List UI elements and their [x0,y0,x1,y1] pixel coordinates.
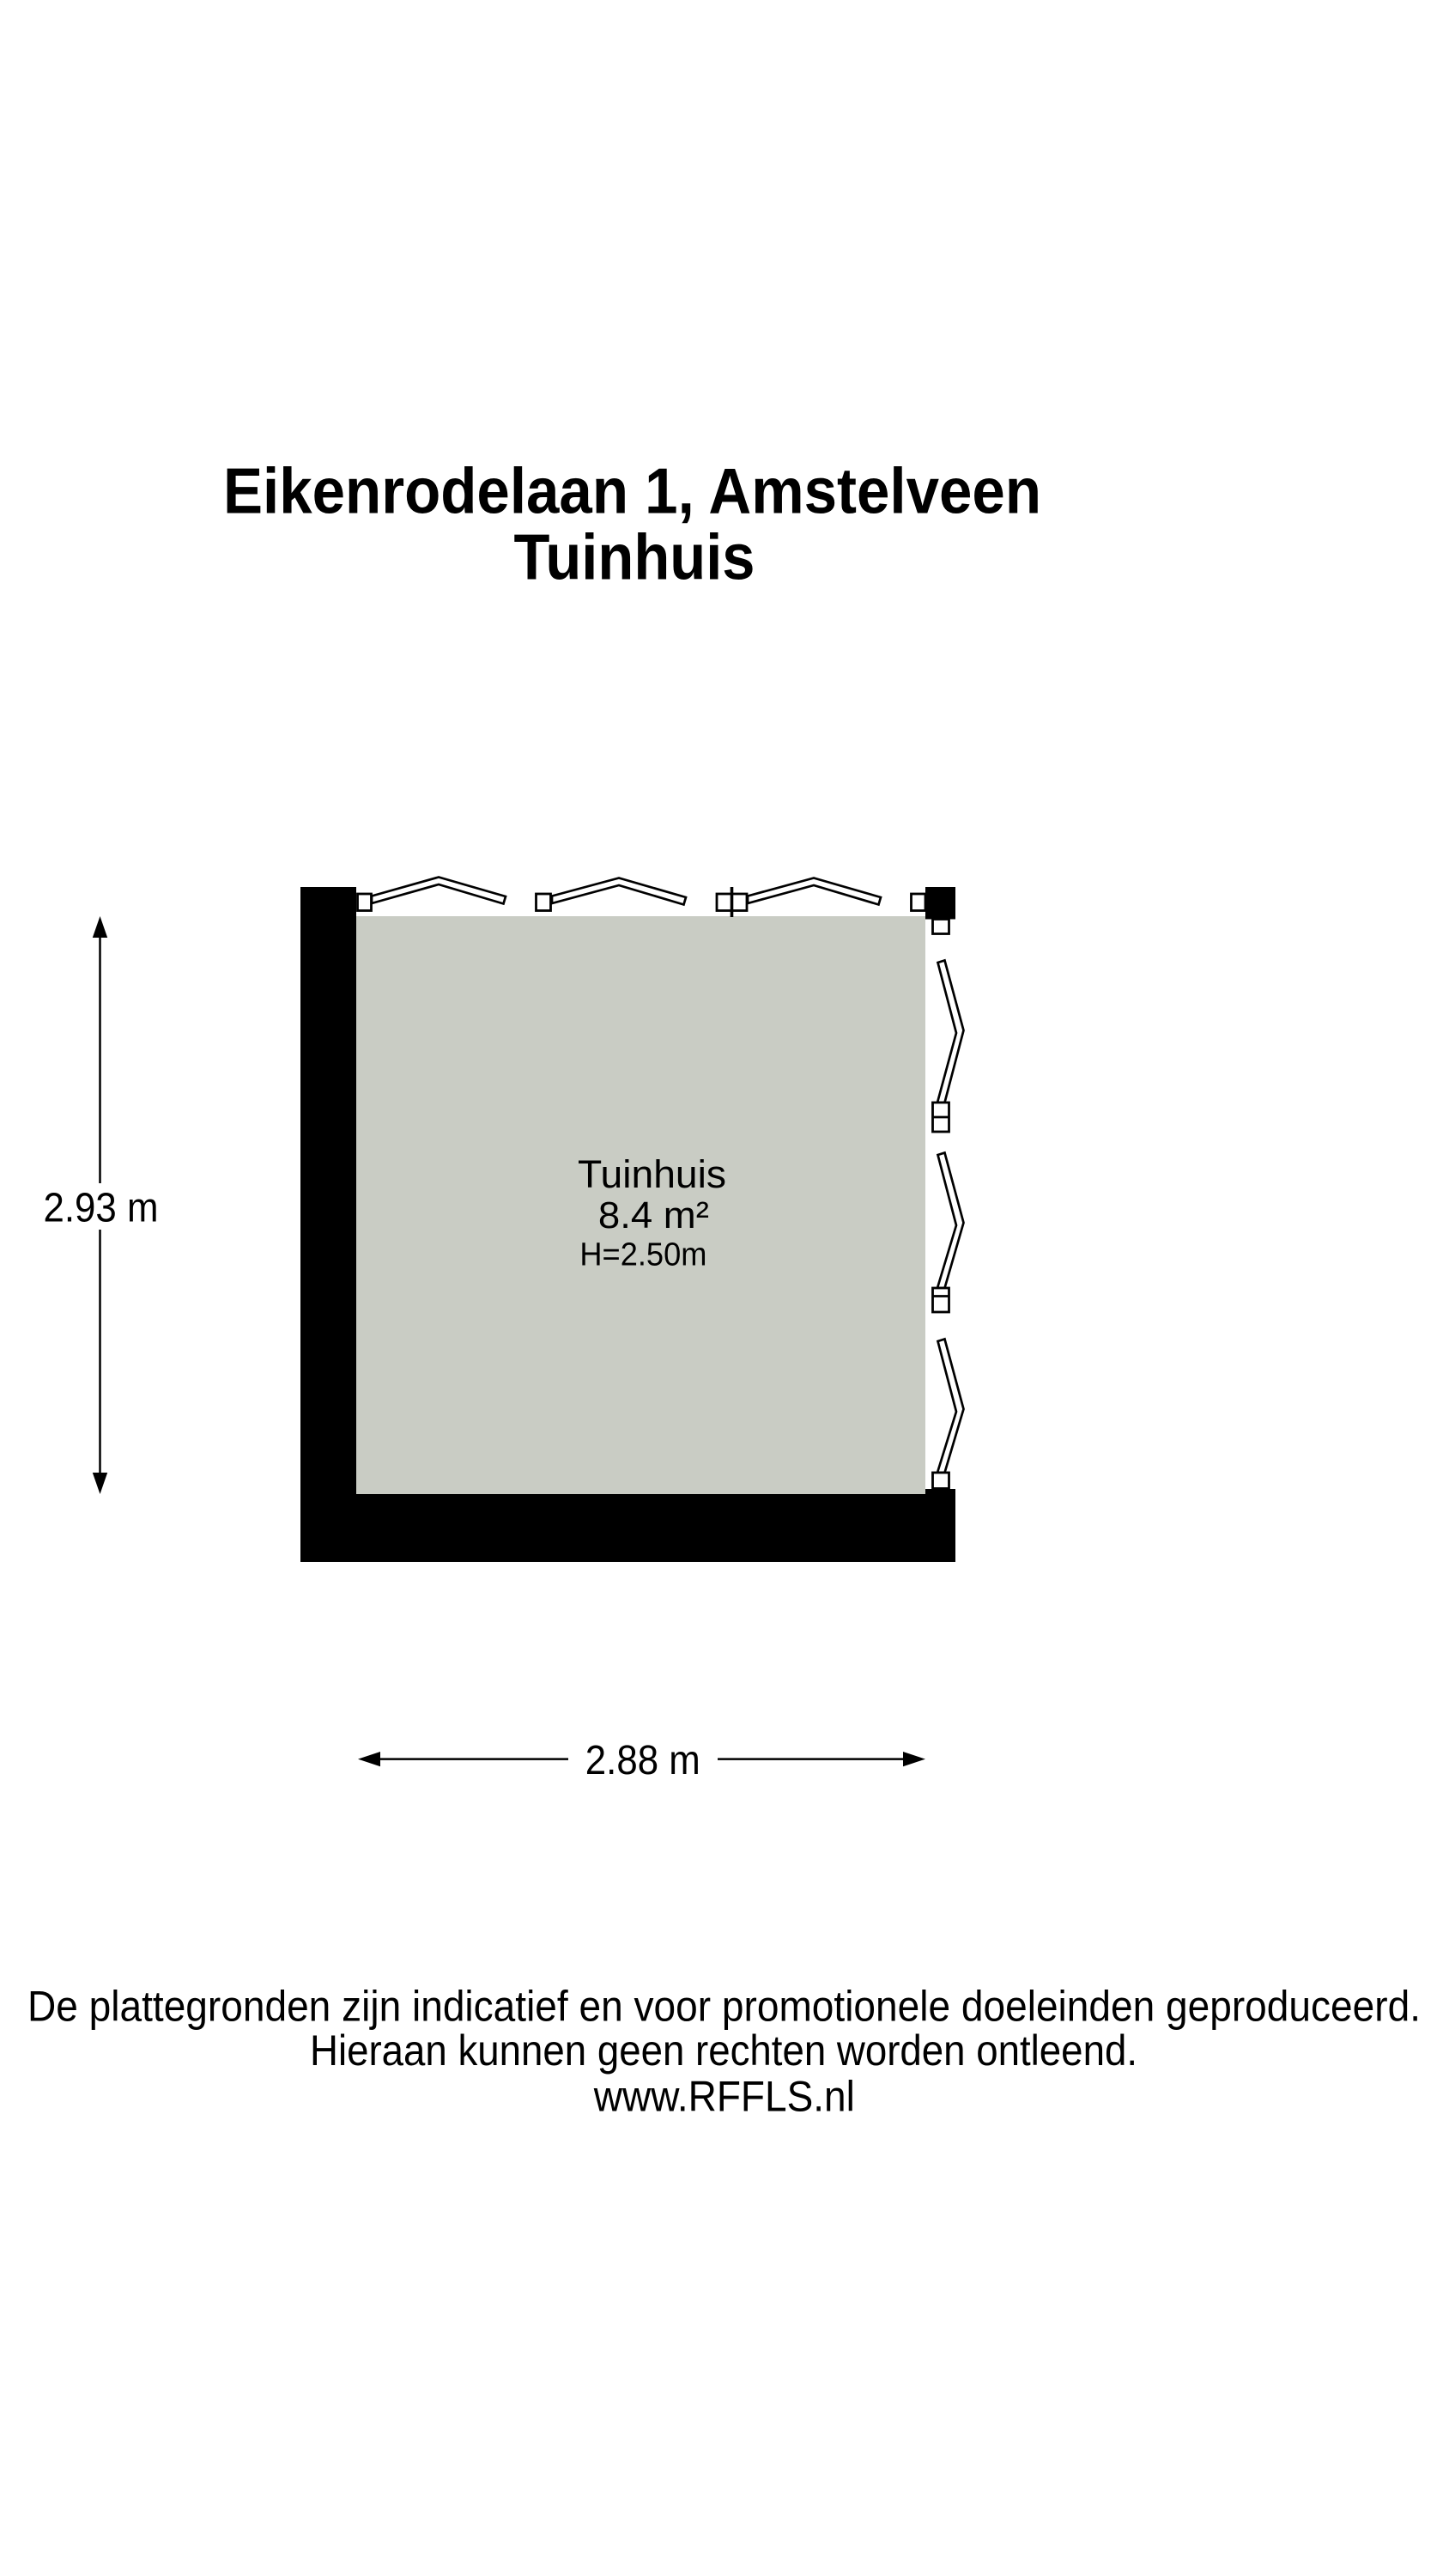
svg-text:Eikenrodelaan 1, Amstelveen: Eikenrodelaan 1, Amstelveen [223,455,1041,527]
svg-text:www.RFFLS.nl: www.RFFLS.nl [593,2072,855,2120]
svg-text:8.4 m²: 8.4 m² [598,1194,709,1236]
svg-text:Tuinhuis: Tuinhuis [578,1152,726,1196]
svg-text:Hieraan kunnen geen rechten wo: Hieraan kunnen geen rechten worden ontle… [310,2026,1137,2075]
svg-text:Tuinhuis: Tuinhuis [514,521,755,593]
svg-text:De plattegronden zijn indicati: De plattegronden zijn indicatief en voor… [27,1983,1421,2031]
svg-text:2.88 m: 2.88 m [585,1738,700,1783]
svg-text:H=2.50m: H=2.50m [579,1237,706,1273]
svg-text:2.93 m: 2.93 m [44,1186,159,1231]
